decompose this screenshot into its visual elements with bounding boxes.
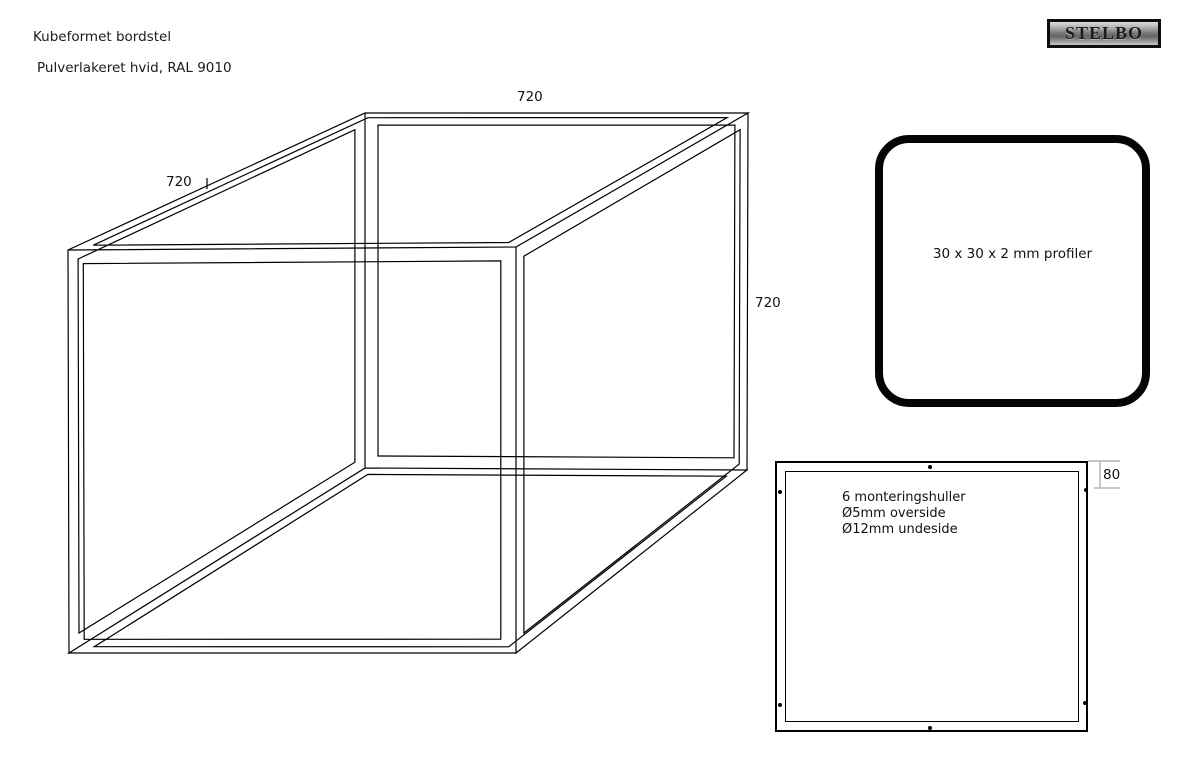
note-line-3: Ø12mm undeside bbox=[842, 522, 966, 538]
stelbo-logo-text: STELBO bbox=[1065, 23, 1143, 44]
note-line-2: Ø5mm overside bbox=[842, 506, 966, 522]
dimension-right-720: 720 bbox=[755, 295, 781, 311]
profile-cross-section: 30 x 30 x 2 mm profiler bbox=[875, 135, 1150, 407]
mounting-plate-diagram: 6 monteringshuller Ø5mm overside Ø12mm u… bbox=[775, 461, 1088, 732]
mounting-hole-right-upper bbox=[1084, 488, 1088, 492]
drawing-title: Kubeformet bordstel bbox=[33, 29, 171, 45]
dimension-left-720: 720 bbox=[166, 174, 192, 190]
dimension-top-720: 720 bbox=[517, 89, 543, 105]
mounting-hole-left-lower bbox=[778, 703, 782, 707]
mounting-hole-bottom-center bbox=[928, 726, 932, 730]
note-line-1: 6 monteringshuller bbox=[842, 490, 966, 506]
dimension-plate-80: 80 bbox=[1103, 467, 1120, 483]
drawing-sheet: Kubeformet bordstel Pulverlakeret hvid, … bbox=[0, 0, 1186, 761]
mounting-hole-left-upper bbox=[778, 490, 782, 494]
mounting-hole-right-lower bbox=[1083, 701, 1087, 705]
mounting-holes-note: 6 monteringshuller Ø5mm overside Ø12mm u… bbox=[842, 490, 966, 538]
stelbo-logo: STELBO bbox=[1047, 19, 1161, 48]
drawing-subtitle: Pulverlakeret hvid, RAL 9010 bbox=[37, 60, 232, 76]
mounting-hole-top-center bbox=[928, 465, 932, 469]
profile-label: 30 x 30 x 2 mm profiler bbox=[933, 246, 1092, 262]
